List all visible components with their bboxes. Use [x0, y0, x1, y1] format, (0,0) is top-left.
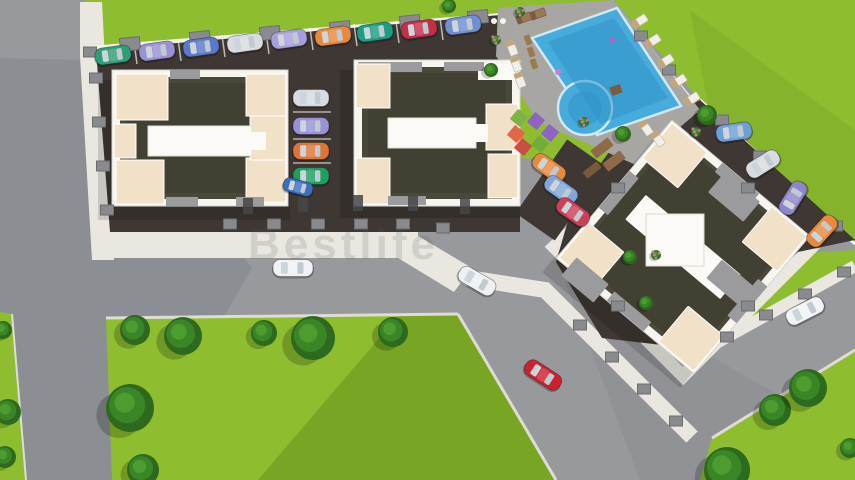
b2-balcony-tl	[356, 64, 390, 108]
car-lavender	[292, 118, 330, 137]
swimmer	[609, 37, 615, 43]
car-white-road	[272, 260, 314, 279]
fence-post	[397, 219, 410, 229]
colonnade-pillar	[353, 195, 363, 211]
fence-post	[97, 161, 110, 171]
fence-post	[721, 332, 734, 342]
fence-post	[638, 384, 651, 394]
fence-post	[742, 301, 755, 311]
b1-balcony-bl	[116, 160, 164, 204]
b1-vent-top	[170, 70, 200, 79]
fence-post	[635, 31, 648, 41]
b1-balcony-br	[246, 158, 286, 202]
aerial-site-render: Bestlife	[0, 0, 855, 480]
fence-post	[742, 183, 755, 193]
fence-post	[670, 416, 683, 426]
fence-post	[268, 219, 281, 229]
fence-post	[312, 219, 325, 229]
fence-post	[437, 223, 450, 233]
colonnade-pillar	[243, 198, 253, 214]
colonnade-pillar	[460, 198, 470, 214]
b1-balcony-ml	[114, 124, 136, 158]
colonnade-pillar	[408, 195, 418, 211]
b2-balcony-br	[488, 154, 518, 198]
b1-balcony-tr	[246, 74, 286, 116]
fence-post	[224, 219, 237, 229]
fence-post	[716, 115, 729, 125]
car-silver	[292, 90, 330, 109]
b1-vent-bottom	[166, 197, 198, 206]
colonnade-pillar	[298, 196, 308, 212]
b1-balcony-tl	[116, 74, 168, 120]
fence-post	[355, 219, 368, 229]
fence-post	[574, 320, 587, 330]
pool-table	[491, 18, 497, 24]
b2-vent-bottom	[388, 196, 426, 205]
fence-post	[612, 183, 625, 193]
site-plan-svg	[0, 0, 855, 480]
fence-post	[760, 310, 773, 320]
sidewalk-bottom	[108, 232, 418, 258]
fence-post	[838, 267, 851, 277]
b1-core-notch	[236, 132, 266, 150]
fence-post	[93, 117, 106, 127]
b2-core-ext	[468, 124, 488, 142]
swimmer	[555, 69, 561, 75]
fence-post	[101, 205, 114, 215]
fence-post	[90, 73, 103, 83]
b2-vent-top	[444, 62, 484, 71]
b2-core	[388, 118, 476, 148]
fence-post	[612, 301, 625, 311]
fence-post	[799, 289, 812, 299]
b2-balcony-mr	[486, 104, 518, 150]
car-orange	[292, 143, 330, 162]
fence-post	[606, 352, 619, 362]
pool-table	[500, 18, 506, 24]
